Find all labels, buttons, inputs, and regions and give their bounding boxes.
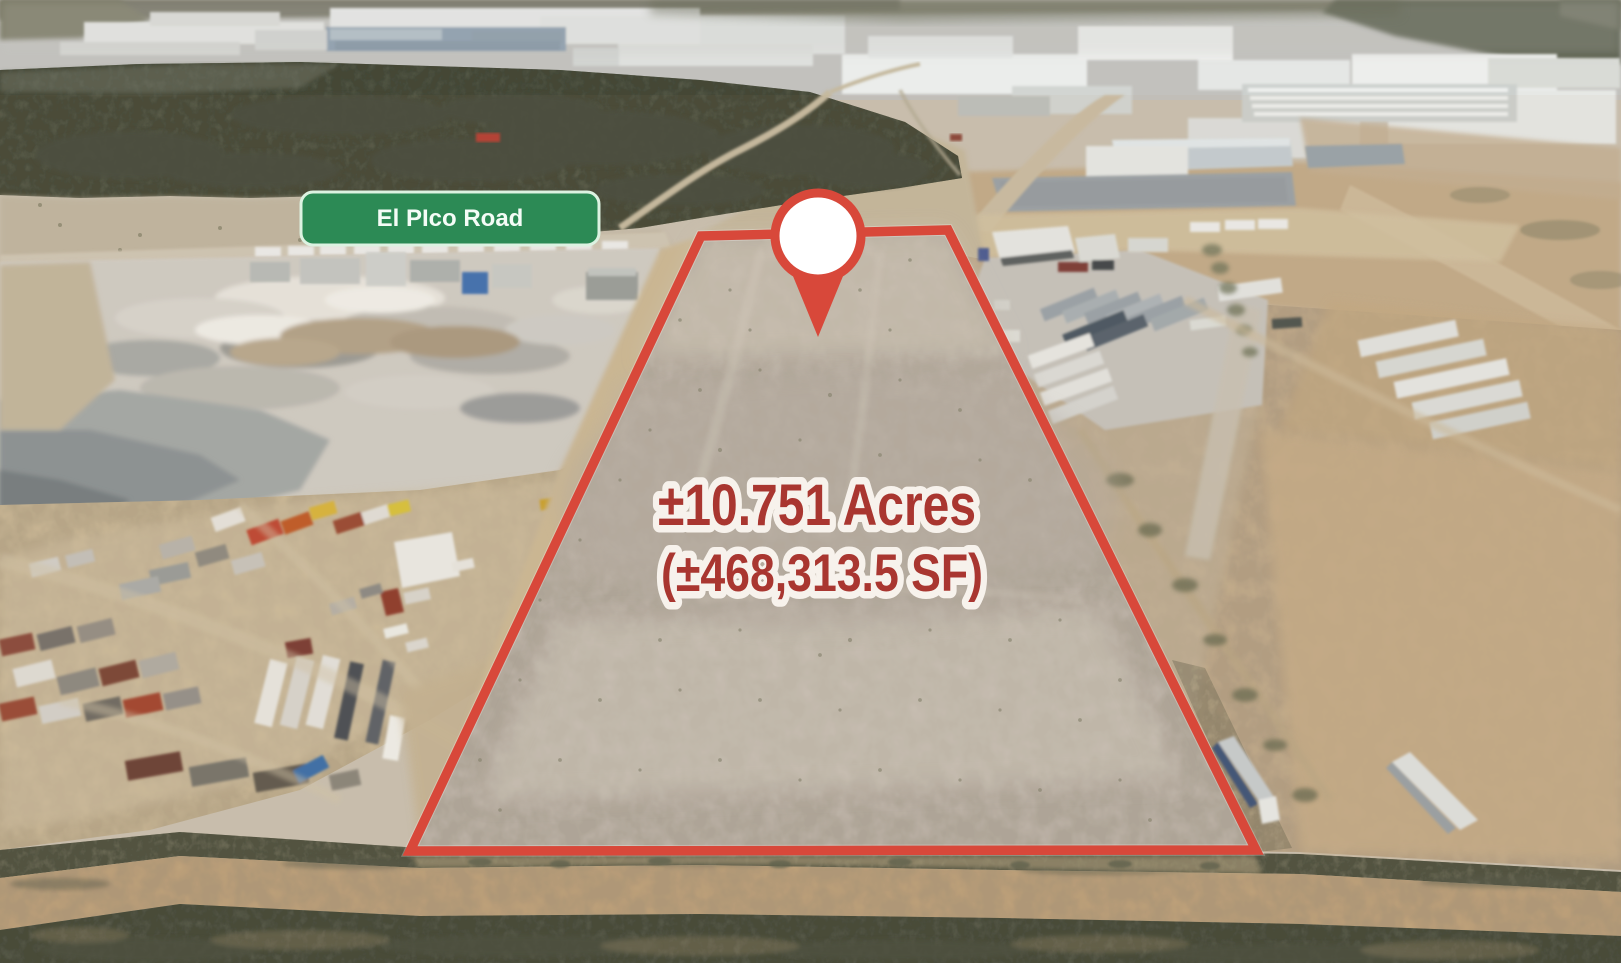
svg-text:(±468,313.5 SF): (±468,313.5 SF)	[661, 544, 983, 603]
svg-text:El PIco Road: El PIco Road	[377, 205, 524, 232]
svg-text:±10.751 Acres: ±10.751 Acres	[658, 473, 976, 538]
